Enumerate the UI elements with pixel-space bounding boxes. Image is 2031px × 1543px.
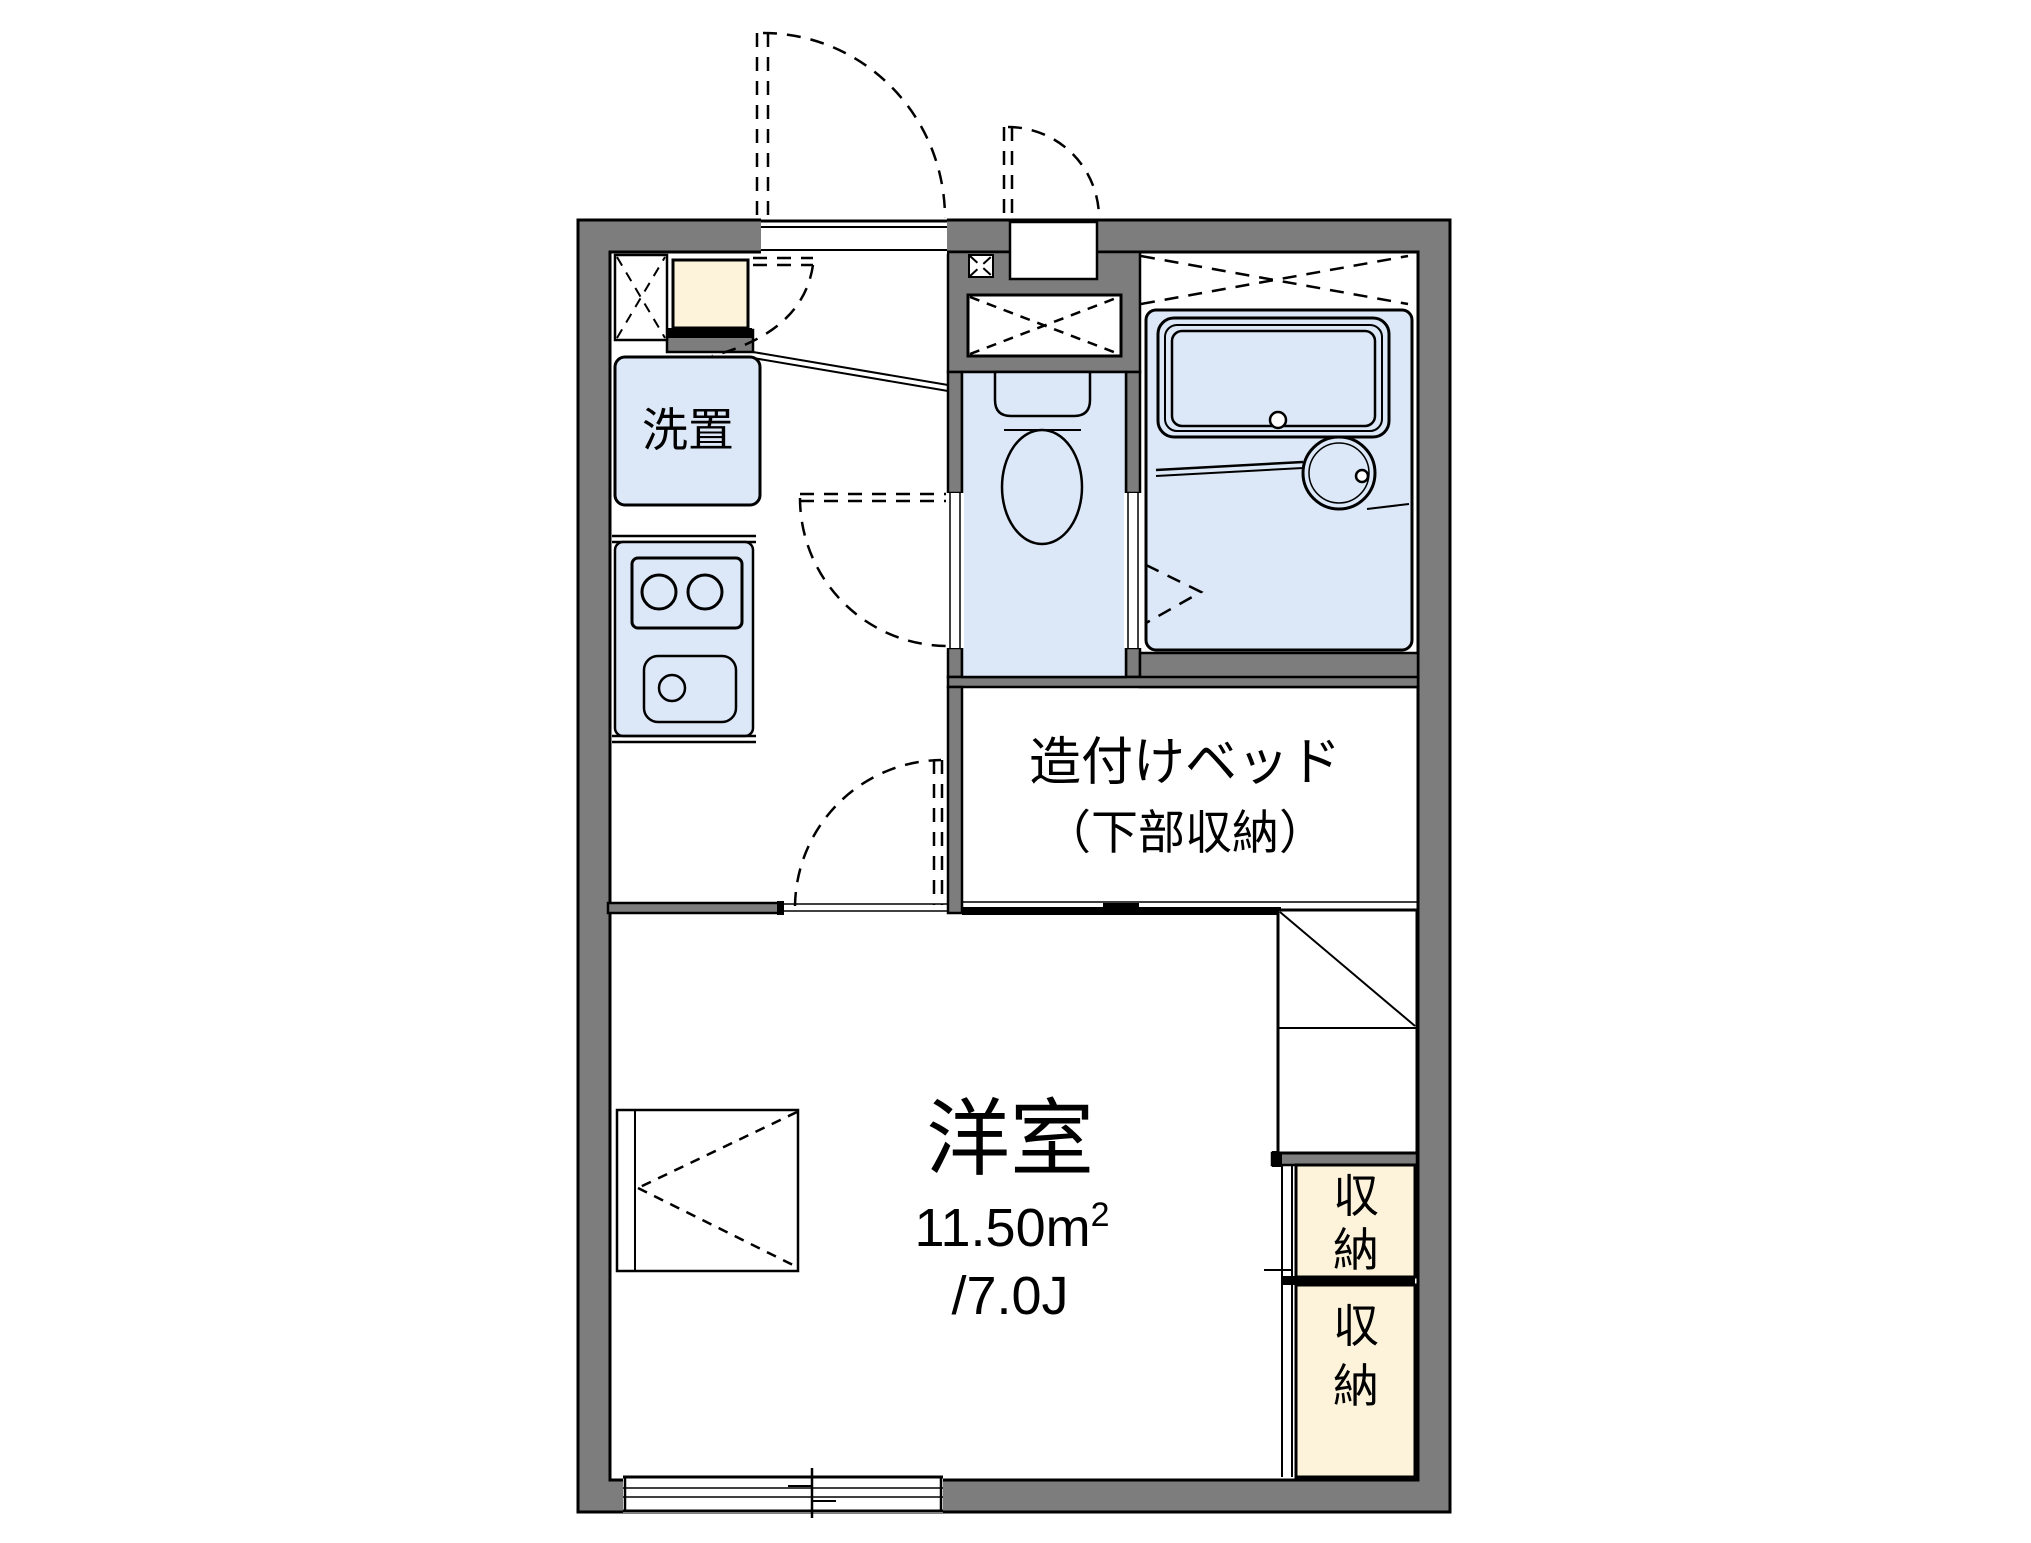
sink-drain-icon: [659, 675, 685, 701]
entrance-door: [757, 33, 945, 218]
washer-pan: [615, 255, 667, 340]
bay-counter-box: [617, 1110, 798, 1271]
wall-bed-top: [948, 677, 1418, 687]
wall-corridor-bottom: [608, 903, 782, 913]
toilet-door: [800, 493, 964, 648]
wall-closet-bottom-stub: [1272, 1153, 1417, 1165]
wall-corridor-bottom-cap: [777, 901, 784, 915]
bottom-window: [623, 1468, 943, 1518]
living-room-door: [782, 760, 948, 911]
burner-icon: [642, 575, 676, 609]
bathtub-drain-icon: [1270, 412, 1286, 428]
wash-basin: [1303, 437, 1375, 509]
storage-unit-2: 収 納: [1296, 1285, 1415, 1477]
built-in-bed-room: 造付けベッド （下部収納）: [1029, 734, 1341, 859]
room-tatami-label: /7.0J: [951, 1266, 1068, 1326]
living-room-labels: 洋室 11.50m2 /7.0J: [914, 1092, 1109, 1326]
washer-place-box: 洗置: [615, 357, 760, 505]
entrance-step-line: [753, 352, 948, 391]
toilet-corner-post: [969, 255, 993, 277]
floor-plan-svg: 洗置: [0, 0, 2031, 1543]
storage-unit-1: 収 納: [1296, 1165, 1415, 1277]
bed-label-line2: （下部収納）: [1044, 806, 1326, 859]
toilet-tank: [995, 372, 1090, 416]
burner-icon: [688, 575, 722, 609]
basin-tap-icon: [1356, 470, 1368, 482]
living-room-door-arc: [795, 760, 941, 906]
entrance-opening: [761, 218, 947, 254]
closet: [1278, 910, 1417, 1153]
sink: [644, 656, 736, 722]
toilet-fixture: [995, 372, 1090, 544]
toilet-bowl: [1002, 430, 1082, 544]
floor-plan: 洗置: [0, 0, 2031, 1543]
bathtub: [1158, 318, 1389, 437]
bathroom-ceiling-cross: [1141, 256, 1408, 304]
storage-1-label-top: 収: [1333, 1170, 1379, 1222]
storage-1-label-bottom: 納: [1333, 1224, 1379, 1276]
shoe-cabinet: [668, 260, 752, 338]
stove: [632, 558, 742, 628]
wall-bedroom-left: [948, 687, 962, 913]
living-room-label: 洋室: [926, 1092, 1094, 1186]
toilet-door-arc: [800, 498, 948, 646]
toilet-window-door: [1004, 127, 1099, 218]
wall-toilet-left-upper: [948, 372, 962, 493]
wall-toilet-bath-upper: [1126, 372, 1140, 493]
storage-2-label-bottom: 納: [1333, 1360, 1379, 1412]
wall-toilet-left-lower: [948, 648, 962, 677]
toilet-window-recess: [1010, 222, 1097, 279]
toilet-window-door-arc: [1008, 127, 1099, 218]
toilet-shelf: [968, 295, 1121, 356]
bed-label-line1: 造付けベッド: [1029, 734, 1341, 792]
entrance-door-arc: [763, 33, 945, 218]
wall-toilet-bath-lower: [1126, 648, 1140, 677]
room-area-label: 11.50m2: [914, 1196, 1109, 1258]
storage-2-label-top: 収: [1333, 1300, 1379, 1352]
washer-place-label: 洗置: [642, 404, 734, 456]
